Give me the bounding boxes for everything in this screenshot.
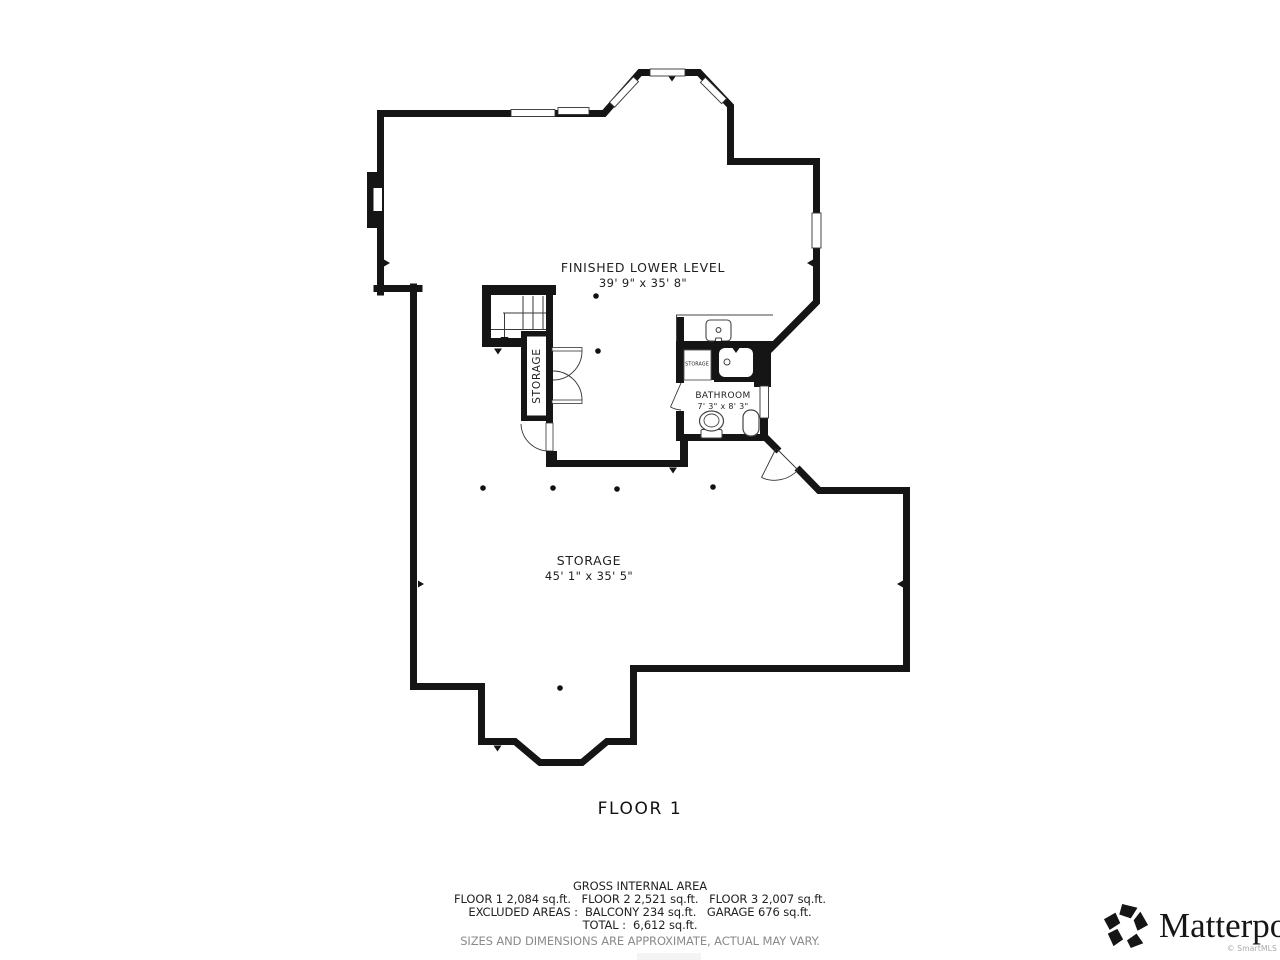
window-right-wall [812,213,821,248]
shower [714,341,758,382]
floor-plan-page: { "floor_plan": { "floor_title": "FLOOR … [0,0,1280,960]
room-dims-storage: 45' 1" x 35' 5" [545,569,633,583]
matterport-icon [1103,903,1149,949]
matterport-wordmark: Matterport [1159,906,1280,946]
storage-entry-door [762,449,799,481]
upper-room-walls [377,73,817,351]
stairwell-walls [482,285,556,423]
footer-gross-internal-area: GROSS INTERNAL AREA [573,879,707,893]
storage-room-walls [414,287,907,763]
room-label-bathroom: BATHROOM [695,391,750,401]
closet-label-storage: STORAGE [531,348,543,404]
room-label-storage: STORAGE [557,553,621,568]
footer-disclaimer: SIZES AND DIMENSIONS ARE APPROXIMATE, AC… [460,934,820,948]
small-closet-label-storage: STORAGE [685,361,709,366]
bay-window [610,69,727,107]
floor-title: FLOOR 1 [598,799,683,819]
smartmls-copyright: © SmartMLS [1227,944,1277,953]
footer-total-area: TOTAL : 6,612 sq.ft. [583,918,698,932]
bay-window-tick [669,77,676,82]
chimney [367,172,384,228]
matterport-logo: Matterport [1103,903,1280,949]
room-dims-bathroom: 7' 3" x 8' 3" [698,402,749,411]
footer-excluded-areas: EXCLUDED AREAS : BALCONY 234 sq.ft. GARA… [468,905,811,919]
diagonal-wall-upper [769,302,817,350]
room-dims-finished-lower-level: 39' 9" x 35' 8" [599,276,687,290]
extension-tick [669,468,677,474]
bathroom-window [760,386,769,418]
extension-walls [548,441,688,467]
toilet [700,411,724,438]
bathroom-sink [706,320,731,343]
footer-faint-bar [637,953,701,960]
footer-floor-areas: FLOOR 1 2,084 sq.ft. FLOOR 2 2,521 sq.ft… [454,892,826,906]
stair-tick [494,349,502,355]
closet-double-doors [552,348,582,404]
bathroom-door [671,383,682,410]
pedestal-sink [743,410,759,436]
room-label-finished-lower-level: FINISHED LOWER LEVEL [561,260,725,275]
